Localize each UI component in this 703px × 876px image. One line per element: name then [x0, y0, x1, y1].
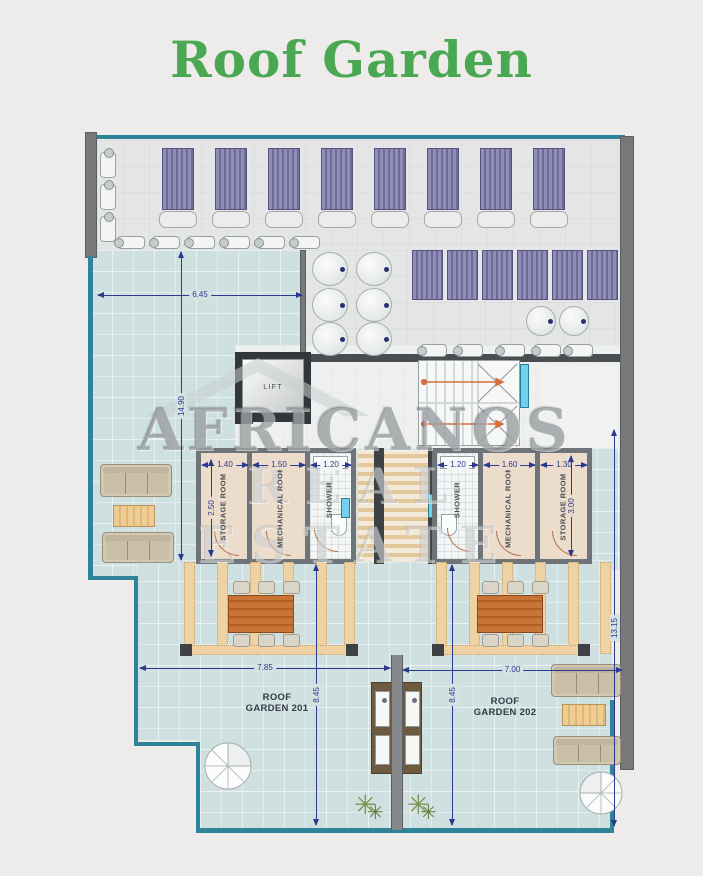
- plant-icon: ✳ ✳: [352, 790, 392, 830]
- planter: [222, 236, 250, 249]
- round-table: [526, 306, 556, 336]
- step-railing-h1: [88, 576, 138, 580]
- lounger-pad: [212, 211, 250, 228]
- chair: [482, 634, 499, 647]
- sun-lounger: [587, 250, 618, 300]
- sun-lounger: [412, 250, 443, 300]
- dimension: 13.15: [610, 430, 619, 826]
- round-table: [312, 288, 348, 322]
- sun-lounger: [162, 148, 194, 210]
- page-title: Roof Garden: [0, 30, 703, 89]
- dimension: 8.45: [448, 565, 457, 825]
- chair: [507, 581, 524, 594]
- chair: [532, 634, 549, 647]
- sofa: [100, 464, 172, 497]
- garden-202-label: ROOFGARDEN 202: [465, 696, 545, 719]
- sun-lounger: [517, 250, 548, 300]
- dimension: 1.20: [311, 461, 351, 470]
- staircase: [418, 360, 520, 446]
- pergola-beam: [217, 562, 228, 654]
- chair: [507, 634, 524, 647]
- planter: [498, 344, 525, 357]
- sun-lounger: [215, 148, 247, 210]
- dining-table: [477, 595, 543, 633]
- plan-notch: [133, 740, 197, 832]
- sun-lounger: [427, 148, 459, 210]
- dimension: 14.90: [177, 252, 186, 560]
- planter: [420, 344, 447, 357]
- garden-divider-wall: [391, 655, 403, 830]
- round-table: [356, 252, 392, 286]
- dimension: 1.30: [541, 461, 587, 470]
- room-label: STORAGE ROOM: [220, 473, 229, 540]
- planter: [117, 236, 145, 249]
- room-label: MECHANICAL ROOM: [277, 466, 286, 548]
- round-table: [559, 306, 589, 336]
- pergola-beam: [436, 562, 447, 654]
- sun-lounger: [480, 148, 512, 210]
- room-label: SHOWER: [326, 482, 335, 518]
- dimension: 1.50: [253, 461, 305, 470]
- top-railing: [95, 135, 625, 139]
- planter: [100, 216, 116, 242]
- page: { "title": "Roof Garden", "watermark": {…: [0, 0, 703, 876]
- pergola-post: [180, 644, 192, 656]
- stair-window: [520, 364, 529, 408]
- sun-lounger: [447, 250, 478, 300]
- chair: [482, 581, 499, 594]
- pergola-beam: [184, 562, 195, 654]
- dimension: 7.00: [403, 666, 622, 675]
- left-railing-bottom: [196, 742, 200, 832]
- step-railing-h2: [134, 742, 200, 746]
- lounger-pad: [530, 211, 568, 228]
- sun-lounger: [482, 250, 513, 300]
- corridor-wall-left: [374, 448, 384, 564]
- sun-lounger: [374, 148, 406, 210]
- sun-lounger: [268, 148, 300, 210]
- dimension: 1.60: [484, 461, 535, 470]
- grill-icon: [375, 735, 390, 765]
- sun-lounger: [321, 148, 353, 210]
- lift-label: LIFT: [263, 382, 282, 391]
- planter: [534, 344, 561, 357]
- room-label: SHOWER: [454, 482, 463, 518]
- coffee-table: [113, 505, 155, 527]
- pergola-post: [578, 644, 590, 656]
- room-label: MECHANICAL ROOM: [505, 466, 514, 548]
- round-table: [356, 322, 392, 356]
- planter: [257, 236, 285, 249]
- lounger-pad: [159, 211, 197, 228]
- plant-icon: ✳ ✳: [403, 790, 443, 830]
- pergola-beam: [344, 562, 355, 654]
- lounger-pad: [318, 211, 356, 228]
- dimension: 3.00: [567, 456, 576, 556]
- chair: [233, 581, 250, 594]
- chair: [283, 581, 300, 594]
- lift-shaft: LIFT: [235, 352, 311, 424]
- spiral-stair-icon: [203, 741, 253, 791]
- shower-door-201: [341, 498, 350, 518]
- lounger-pad: [477, 211, 515, 228]
- garden-201-label: ROOFGARDEN 201: [237, 692, 317, 715]
- lounger-pad: [265, 211, 303, 228]
- left-wall: [85, 132, 97, 258]
- planter: [292, 236, 320, 249]
- lounger-pad: [371, 211, 409, 228]
- coffee-table: [562, 704, 606, 726]
- terrace-divider-wall: [300, 250, 306, 362]
- sun-lounger: [552, 250, 583, 300]
- lift-car: LIFT: [242, 359, 304, 413]
- dimension: 8.45: [312, 565, 321, 825]
- round-table: [312, 252, 348, 286]
- chair: [233, 634, 250, 647]
- planter: [456, 344, 483, 357]
- sun-lounger: [533, 148, 565, 210]
- planter: [100, 184, 116, 210]
- marble-patio: [540, 365, 618, 448]
- step-railing-v: [134, 576, 138, 746]
- chair: [283, 634, 300, 647]
- planter: [100, 152, 116, 178]
- lift-door: [253, 422, 293, 426]
- center-corridor-deck: [358, 450, 428, 562]
- lounger-pad: [424, 211, 462, 228]
- sink-icon: [375, 691, 390, 727]
- pergola-post: [346, 644, 358, 656]
- round-table: [356, 288, 392, 322]
- round-table: [312, 322, 348, 356]
- right-wall: [620, 136, 634, 770]
- sofa: [102, 532, 174, 563]
- grill-icon: [405, 735, 420, 765]
- dining-table: [228, 595, 294, 633]
- planter: [152, 236, 180, 249]
- chair: [532, 581, 549, 594]
- dimension: 7.85: [140, 664, 390, 673]
- dimension: 1.20: [438, 461, 478, 470]
- pergola-post: [432, 644, 444, 656]
- sink-icon: [405, 691, 420, 727]
- dimension: 6.45: [98, 291, 302, 300]
- chair: [258, 581, 275, 594]
- pergola-beam: [568, 562, 579, 654]
- left-railing: [88, 256, 93, 578]
- planter: [187, 236, 215, 249]
- chair: [258, 634, 275, 647]
- planter: [566, 344, 593, 357]
- dimension: 2.50: [207, 460, 216, 556]
